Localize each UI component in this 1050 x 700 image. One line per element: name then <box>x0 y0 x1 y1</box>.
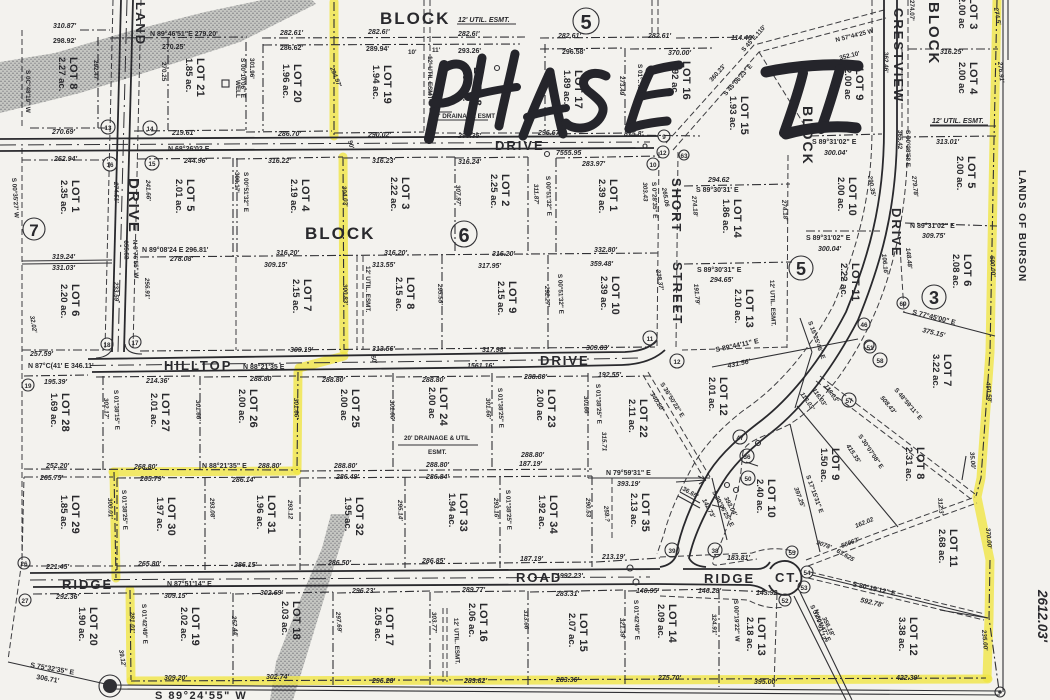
svg-text:47: 47 <box>736 435 744 442</box>
svg-text:289.94': 289.94' <box>366 46 389 53</box>
svg-text:1.69 ac.: 1.69 ac. <box>48 393 59 427</box>
svg-text:1.86 ac.: 1.86 ac. <box>720 199 731 233</box>
svg-text:CT.: CT. <box>775 570 801 585</box>
svg-text:LOT 6: LOT 6 <box>69 284 81 317</box>
svg-text:270.69': 270.69' <box>51 129 75 136</box>
svg-text:LOT 8: LOT 8 <box>67 57 79 90</box>
svg-text:275.70': 275.70' <box>657 675 681 682</box>
svg-text:S 01°38'25" E: S 01°38'25" E <box>496 388 505 428</box>
svg-text:309.75': 309.75' <box>922 233 945 240</box>
svg-text:DRIVE: DRIVE <box>540 353 590 368</box>
svg-text:57: 57 <box>845 398 853 405</box>
svg-text:288.80': 288.80' <box>425 462 449 469</box>
svg-text:LOT 12: LOT 12 <box>717 377 729 416</box>
svg-text:63: 63 <box>680 153 688 160</box>
svg-text:LOT 7: LOT 7 <box>941 354 953 387</box>
svg-text:1.96 ac.: 1.96 ac. <box>254 495 265 529</box>
svg-text:303.77': 303.77' <box>430 612 438 633</box>
svg-text:LOT 10: LOT 10 <box>765 479 777 518</box>
svg-text:2612.03': 2612.03' <box>1035 589 1050 643</box>
svg-text:2.00 ac.: 2.00 ac. <box>835 177 846 211</box>
svg-text:1.97 ac.: 1.97 ac. <box>154 497 165 531</box>
svg-text:N 89°31'02" E: N 89°31'02" E <box>910 222 955 230</box>
svg-text:20' DRAINAGE ESMT: 20' DRAINAGE ESMT <box>432 113 495 120</box>
svg-text:LOT 3: LOT 3 <box>967 0 979 30</box>
svg-text:ESMT.: ESMT. <box>428 449 447 456</box>
svg-text:LOT 29: LOT 29 <box>69 495 81 534</box>
svg-text:LOT 10: LOT 10 <box>609 276 621 315</box>
svg-text:LOT 17: LOT 17 <box>383 607 395 646</box>
svg-text:69: 69 <box>899 301 907 308</box>
svg-text:17: 17 <box>131 340 139 347</box>
svg-text:20' DRAINAGE & UTIL: 20' DRAINAGE & UTIL <box>404 435 470 442</box>
svg-text:5: 5 <box>580 12 591 34</box>
svg-text:LOT 31: LOT 31 <box>265 495 277 534</box>
svg-text:S 00°51'32" E: S 00°51'32" E <box>544 176 553 216</box>
svg-text:LOT 19: LOT 19 <box>381 65 393 104</box>
svg-text:316.20': 316.20' <box>492 251 515 258</box>
svg-text:LOT 24: LOT 24 <box>437 387 449 427</box>
svg-text:LOT 5: LOT 5 <box>184 179 196 212</box>
svg-text:288.80': 288.80' <box>321 377 345 384</box>
svg-text:S 00°10'06" E: S 00°10'06" E <box>239 58 247 98</box>
svg-text:LOT 25: LOT 25 <box>349 389 361 428</box>
svg-text:LOT 3: LOT 3 <box>399 177 411 210</box>
svg-text:LOT 34: LOT 34 <box>547 495 559 535</box>
svg-text:BLOCK: BLOCK <box>800 106 816 166</box>
svg-text:LOT 22: LOT 22 <box>637 399 649 438</box>
svg-text:LANDS OF BURSON: LANDS OF BURSON <box>1016 170 1027 282</box>
svg-text:286.50': 286.50' <box>327 560 351 567</box>
svg-text:300.01': 300.01' <box>106 498 114 519</box>
svg-text:315.71: 315.71 <box>600 432 608 452</box>
svg-text:LOT 11: LOT 11 <box>947 529 959 567</box>
svg-text:2.39 ac.: 2.39 ac. <box>596 179 607 213</box>
svg-text:38: 38 <box>711 548 719 555</box>
svg-text:221.45': 221.45' <box>45 564 69 571</box>
svg-text:1.94 ac.: 1.94 ac. <box>370 65 381 99</box>
svg-text:3: 3 <box>929 288 939 308</box>
svg-text:12' UTIL. ESMT.: 12' UTIL. ESMT. <box>364 266 371 313</box>
svg-text:2.07 ac.: 2.07 ac. <box>566 613 577 647</box>
svg-text:2.00 ac: 2.00 ac <box>426 387 437 419</box>
svg-text:252.20': 252.20' <box>45 463 69 470</box>
svg-text:36: 36 <box>743 454 751 461</box>
svg-text:274.07': 274.07' <box>908 0 915 21</box>
svg-text:LOT 35: LOT 35 <box>639 493 651 532</box>
svg-text:241.66': 241.66' <box>144 179 152 201</box>
svg-text:2.68 ac.: 2.68 ac. <box>936 529 947 563</box>
svg-text:2.10 ac.: 2.10 ac. <box>732 289 743 323</box>
svg-text:311.87': 311.87' <box>532 184 540 205</box>
svg-text:LOT 15: LOT 15 <box>738 96 750 135</box>
svg-text:9: 9 <box>662 134 666 141</box>
svg-text:S 01°38'25" E: S 01°38'25" E <box>594 384 603 424</box>
svg-text:233.59: 233.59 <box>112 281 120 302</box>
svg-text:395.00': 395.00' <box>754 679 777 686</box>
svg-text:14: 14 <box>146 126 154 133</box>
svg-text:331.03': 331.03' <box>52 265 75 272</box>
svg-text:282.61': 282.61' <box>647 33 671 40</box>
svg-text:316.22': 316.22' <box>268 158 291 165</box>
svg-text:46: 46 <box>860 322 868 329</box>
svg-text:270.25: 270.25 <box>160 62 167 82</box>
svg-text:301.66': 301.66' <box>388 400 396 421</box>
svg-text:300.04': 300.04' <box>824 150 847 157</box>
svg-text:313.01': 313.01' <box>936 139 959 146</box>
svg-text:282.61': 282.61' <box>557 33 581 40</box>
svg-text:LOT 7: LOT 7 <box>301 279 313 312</box>
svg-text:LOT 13: LOT 13 <box>743 289 755 328</box>
svg-text:1.96 ac.: 1.96 ac. <box>280 64 291 98</box>
svg-text:307.97': 307.97' <box>454 185 462 206</box>
svg-text:S 89°31'02" E: S 89°31'02" E <box>812 138 857 146</box>
svg-text:13: 13 <box>104 125 112 132</box>
svg-text:292.27': 292.27' <box>543 285 551 307</box>
svg-text:187.19': 187.19' <box>519 461 542 468</box>
svg-text:282.6!': 282.6!' <box>457 31 480 38</box>
svg-text:2.05 ac.: 2.05 ac. <box>372 607 383 641</box>
svg-text:50: 50 <box>744 476 752 483</box>
svg-text:290.02': 290.02' <box>367 132 391 139</box>
svg-text:2.11 ac.: 2.11 ac. <box>626 399 637 433</box>
svg-text:S 89°24'55" W: S 89°24'55" W <box>155 690 247 700</box>
svg-text:54: 54 <box>803 570 811 577</box>
svg-text:2.01 ac.: 2.01 ac. <box>173 179 184 213</box>
svg-text:2.01 ac.: 2.01 ac. <box>148 393 159 427</box>
svg-text:319.24': 319.24' <box>52 254 75 261</box>
svg-text:LOT 11: LOT 11 <box>849 263 861 301</box>
svg-text:295.55': 295.55' <box>436 283 444 305</box>
svg-text:2.00 ac: 2.00 ac <box>956 62 967 94</box>
svg-text:324.91': 324.91' <box>710 614 718 635</box>
svg-text:LOT 6: LOT 6 <box>961 254 973 287</box>
svg-text:2.18 ac.: 2.18 ac. <box>744 617 755 651</box>
svg-text:LOT 10: LOT 10 <box>846 177 858 216</box>
svg-text:LOT 27: LOT 27 <box>159 393 171 432</box>
svg-text:302.74': 302.74' <box>266 674 289 681</box>
svg-text:LOT 9: LOT 9 <box>506 281 518 314</box>
svg-text:2.40 ac.: 2.40 ac. <box>754 479 765 513</box>
svg-text:1.89 ac.: 1.89 ac. <box>561 70 572 104</box>
svg-text:2.00 ac: 2.00 ac <box>338 389 349 421</box>
svg-text:LOT 20: LOT 20 <box>291 64 303 103</box>
svg-text:2.06 ac.: 2.06 ac. <box>466 603 477 637</box>
svg-text:2.15 ac.: 2.15 ac. <box>290 279 301 313</box>
svg-text:257.59': 257.59' <box>29 351 53 358</box>
svg-text:S 89°30'31" E: S 89°30'31" E <box>697 266 742 274</box>
svg-text:309.15': 309.15' <box>164 593 187 600</box>
svg-text:1.95 ac.: 1.95 ac. <box>342 497 353 531</box>
svg-text:LOT 4: LOT 4 <box>967 62 979 95</box>
svg-text:1.85 ac.: 1.85 ac. <box>183 58 194 92</box>
svg-text:365.42: 365.42 <box>896 130 903 150</box>
svg-text:N 87°C(41' E 346.11': N 87°C(41' E 346.11' <box>28 362 94 370</box>
svg-text:293.16': 293.16' <box>492 497 500 519</box>
svg-text:2.39 ac.: 2.39 ac. <box>598 276 609 310</box>
svg-text:302.17': 302.17' <box>102 398 110 419</box>
svg-text:LOT 12: LOT 12 <box>907 617 919 656</box>
svg-text:655.52: 655.52 <box>122 240 130 260</box>
svg-text:300.17': 300.17' <box>233 172 240 193</box>
svg-text:N 88°21'35 E: N 88°21'35 E <box>243 363 285 371</box>
svg-text:183.81': 183.81' <box>727 555 750 562</box>
svg-text:11': 11' <box>432 47 441 54</box>
svg-text:HILLTOP: HILLTOP <box>164 358 232 373</box>
svg-text:53: 53 <box>800 585 808 592</box>
svg-text:DRIVE: DRIVE <box>495 138 545 153</box>
svg-text:313.56': 313.56' <box>372 346 395 353</box>
svg-text:270.25': 270.25' <box>162 44 185 51</box>
svg-text:359.48': 359.48' <box>590 261 613 268</box>
svg-text:6: 6 <box>458 225 469 247</box>
svg-text:219.61': 219.61' <box>171 130 195 137</box>
svg-text:281.01': 281.01' <box>128 611 136 633</box>
svg-text:5: 5 <box>796 259 806 279</box>
svg-text:362.46': 362.46' <box>882 52 889 73</box>
svg-text:288.80': 288.80' <box>333 463 357 470</box>
svg-text:N 0°76'55" W: N 0°76'55" W <box>131 240 140 279</box>
svg-text:2.20 ac.: 2.20 ac. <box>58 284 69 318</box>
svg-text:2.25 ac.: 2.25 ac. <box>488 174 499 208</box>
svg-text:LOT 13: LOT 13 <box>755 617 767 656</box>
svg-text:RIDGE: RIDGE <box>704 571 755 586</box>
svg-text:26: 26 <box>20 561 28 568</box>
svg-text:283.31': 283.31' <box>555 591 579 598</box>
svg-text:S 00°51'32" E: S 00°51'32" E <box>242 172 250 212</box>
svg-text:RIDGE: RIDGE <box>62 577 113 592</box>
svg-text:293.12: 293.12 <box>286 499 294 520</box>
svg-text:N 87°51'14" E: N 87°51'14" E <box>167 580 212 588</box>
svg-text:S 00°19'22" W: S 00°19'22" W <box>732 600 741 642</box>
svg-text:1561.16': 1561.16' <box>467 363 494 370</box>
svg-text:422.39': 422.39' <box>895 675 919 682</box>
svg-text:289.77': 289.77' <box>461 587 485 594</box>
svg-text:294.65': 294.65' <box>709 277 733 284</box>
svg-text:DRIVE: DRIVE <box>889 208 904 258</box>
svg-text:268.80': 268.80' <box>133 464 157 471</box>
svg-text:LOT 28: LOT 28 <box>59 393 71 432</box>
svg-text:N 68°26'02 E: N 68°26'02 E <box>168 145 210 153</box>
svg-text:N 89°08'24 E 296.81': N 89°08'24 E 296.81' <box>142 246 209 254</box>
svg-text:298.92': 298.92' <box>53 38 76 45</box>
svg-text:LOT 1: LOT 1 <box>607 179 619 212</box>
svg-text:S 89°31'02" E: S 89°31'02" E <box>806 234 851 242</box>
svg-text:313.55': 313.55' <box>372 262 395 269</box>
svg-text:213.19': 213.19' <box>601 554 625 561</box>
svg-text:2.00 ac.: 2.00 ac. <box>236 389 247 423</box>
svg-text:7: 7 <box>29 221 38 240</box>
svg-text:309.19': 309.19' <box>290 347 313 354</box>
svg-text:286.15': 286.15' <box>233 562 257 569</box>
svg-text:BLOCK: BLOCK <box>305 224 375 243</box>
svg-text:LOT 33: LOT 33 <box>457 493 469 532</box>
svg-text:2.31 ac.: 2.31 ac. <box>903 447 914 481</box>
svg-text:283.82': 283.82' <box>463 678 487 685</box>
svg-text:332.80': 332.80' <box>594 247 617 254</box>
svg-text:288.80': 288.80' <box>523 374 547 381</box>
svg-text:11: 11 <box>647 336 654 343</box>
svg-text:309.15': 309.15' <box>264 262 287 269</box>
svg-text:LOT 18: LOT 18 <box>290 601 302 640</box>
svg-text:LOT 19: LOT 19 <box>189 607 201 646</box>
svg-text:195.39': 195.39' <box>44 379 67 386</box>
svg-text:10: 10 <box>649 162 657 169</box>
svg-text:S 01°38'15" E: S 01°38'15" E <box>112 390 121 430</box>
svg-text:286.85': 286.85' <box>421 558 445 565</box>
svg-text:288.80': 288.80' <box>520 452 544 459</box>
svg-text:286.62': 286.62' <box>280 45 303 52</box>
svg-text:S 00°28'58 E: S 00°28'58 E <box>904 130 912 167</box>
svg-text:LOT 26: LOT 26 <box>247 389 259 428</box>
svg-text:316.24': 316.24' <box>458 159 481 166</box>
svg-text:7555.95: 7555.95 <box>556 150 581 157</box>
svg-text:18: 18 <box>103 342 111 349</box>
svg-text:302.69': 302.69' <box>260 590 283 597</box>
svg-text:262.94': 262.94' <box>53 156 77 163</box>
svg-text:DRIVE: DRIVE <box>125 178 142 234</box>
svg-text:LOT 20: LOT 20 <box>87 607 99 646</box>
svg-text:500.00': 500.00' <box>988 256 996 278</box>
svg-text:2.13 ac.: 2.13 ac. <box>628 493 639 527</box>
svg-text:265.75': 265.75' <box>39 475 63 482</box>
svg-text:16: 16 <box>106 162 114 169</box>
svg-text:2.00 ac: 2.00 ac <box>534 389 545 421</box>
svg-text:2.01 ac.: 2.01 ac. <box>706 377 717 411</box>
svg-text:296.58': 296.58' <box>562 49 585 56</box>
svg-text:286.70': 286.70' <box>277 131 301 138</box>
svg-text:2.00 ac.: 2.00 ac. <box>954 156 965 190</box>
svg-text:256.91': 256.91' <box>143 277 151 299</box>
svg-text:LAND: LAND <box>133 2 148 46</box>
svg-text:12' UTIL. ESMT.: 12' UTIL. ESMT. <box>932 118 984 125</box>
svg-text:300.83': 300.83' <box>341 284 349 305</box>
svg-text:LOT 9: LOT 9 <box>853 68 865 101</box>
svg-text:290.53: 290.53 <box>584 497 592 518</box>
svg-text:LOT 14: LOT 14 <box>666 604 678 644</box>
svg-text:S 0°28'35" E: S 0°28'35" E <box>650 182 659 219</box>
svg-text:LOT 30: LOT 30 <box>165 497 177 536</box>
svg-text:273.49: 273.49 <box>618 76 625 96</box>
svg-text:296.28': 296.28' <box>371 678 395 685</box>
svg-text:2.09 ac.: 2.09 ac. <box>655 604 666 638</box>
svg-text:310.87': 310.87' <box>53 23 76 30</box>
svg-text:27: 27 <box>21 598 29 605</box>
svg-text:1.50 ac.: 1.50 ac. <box>818 448 829 482</box>
svg-text:2.02 ac.: 2.02 ac. <box>178 607 189 641</box>
svg-text:30166: 30166 <box>582 396 590 414</box>
svg-text:LOT 8: LOT 8 <box>404 277 416 310</box>
svg-text:313.66: 313.66 <box>522 610 530 630</box>
svg-text:288.80': 288.80' <box>421 377 445 384</box>
svg-text:214.36': 214.36' <box>145 378 169 385</box>
svg-text:1.90 ac.: 1.90 ac. <box>76 607 87 641</box>
svg-text:244.96': 244.96' <box>183 158 207 165</box>
svg-text:LOT 14: LOT 14 <box>731 199 743 239</box>
svg-text:309.83': 309.83' <box>586 345 609 352</box>
svg-text:292.36': 292.36' <box>55 594 79 601</box>
svg-text:283.36': 283.36' <box>555 677 579 684</box>
svg-text:2.08 ac.: 2.08 ac. <box>950 254 961 288</box>
svg-text:274.51': 274.51' <box>112 181 120 203</box>
svg-text:293.08': 293.08' <box>208 497 216 519</box>
svg-text:S 89°30'31' E: S 89°30'31' E <box>696 186 739 194</box>
svg-text:2.15 ac.: 2.15 ac. <box>393 277 404 311</box>
svg-text:286.14': 286.14' <box>231 477 255 484</box>
svg-text:301.66': 301.66' <box>292 398 300 419</box>
svg-text:S 01°42'49" E: S 01°42'49" E <box>632 600 641 640</box>
svg-text:1.93 ac.: 1.93 ac. <box>727 96 738 130</box>
svg-text:52: 52 <box>781 598 789 605</box>
svg-text:140.95': 140.95' <box>636 588 659 595</box>
svg-text:146.28': 146.28' <box>698 588 721 595</box>
svg-text:370.00': 370.00' <box>668 50 691 57</box>
svg-text:S 00°51'32" E: S 00°51'32" E <box>556 274 565 314</box>
svg-text:192.55': 192.55' <box>598 372 621 379</box>
svg-text:LOT 23: LOT 23 <box>545 389 557 428</box>
svg-text:301.96': 301.96' <box>248 58 255 79</box>
svg-text:BLOCK: BLOCK <box>380 9 450 28</box>
svg-text:LOT 15: LOT 15 <box>577 613 589 652</box>
svg-text:LOT 21: LOT 21 <box>194 58 206 97</box>
svg-text:55: 55 <box>788 550 796 557</box>
svg-text:316.20': 316.20' <box>276 250 299 257</box>
svg-text:LOT 32: LOT 32 <box>353 497 365 536</box>
svg-text:2.27 ac.: 2.27 ac. <box>56 57 67 91</box>
svg-text:265.80': 265.80' <box>137 561 161 568</box>
svg-text:S 01°42'49" E: S 01°42'49" E <box>140 604 149 644</box>
svg-text:282.6!': 282.6!' <box>367 29 390 36</box>
svg-text:293.26': 293.26' <box>458 48 481 55</box>
svg-text:317.95': 317.95' <box>478 263 501 270</box>
svg-text:SHORT: SHORT <box>669 178 684 234</box>
svg-text:295.14': 295.14' <box>396 499 404 521</box>
svg-text:19: 19 <box>24 383 32 390</box>
svg-text:LOT 9: LOT 9 <box>829 448 841 481</box>
svg-text:15: 15 <box>148 161 156 168</box>
svg-text:1.94 ac.: 1.94 ac. <box>446 493 457 527</box>
svg-text:2.22 ac.: 2.22 ac. <box>388 177 399 211</box>
svg-text:294.62: 294.62 <box>707 177 730 184</box>
svg-text:309.20': 309.20' <box>164 675 187 682</box>
svg-text:LOT 8: LOT 8 <box>914 447 926 480</box>
svg-text:278.08': 278.08' <box>169 256 193 263</box>
svg-text:3.38 ac.: 3.38 ac. <box>896 617 907 651</box>
svg-text:301.66': 301.66' <box>484 398 492 419</box>
svg-text:LOT 1: LOT 1 <box>69 180 81 213</box>
svg-text:2.19 ac.: 2.19 ac. <box>288 179 299 213</box>
svg-text:LOT 2: LOT 2 <box>499 174 511 207</box>
svg-text:2.03 ac.: 2.03 ac. <box>279 601 290 635</box>
svg-text:STREET: STREET <box>670 262 685 325</box>
svg-text:2.00 ac: 2.00 ac <box>956 0 967 29</box>
svg-text:288.80': 288.80' <box>257 463 281 470</box>
svg-text:143.92: 143.92 <box>756 590 778 597</box>
svg-text:292.47': 292.47' <box>92 60 99 81</box>
svg-text:316.23': 316.23' <box>372 158 395 165</box>
svg-text:12: 12 <box>673 359 681 366</box>
svg-text:2.35 ac.: 2.35 ac. <box>58 180 69 214</box>
svg-text:288.80: 288.80 <box>249 376 272 383</box>
svg-text:317.98': 317.98' <box>482 347 505 354</box>
svg-text:12' UTIL ESMT: 12' UTIL ESMT <box>426 56 433 100</box>
svg-text:2.22 ac.: 2.22 ac. <box>838 263 849 297</box>
svg-text:301.66': 301.66' <box>194 400 202 421</box>
svg-text:265.79': 265.79' <box>139 476 163 483</box>
svg-text:3.22 ac.: 3.22 ac. <box>930 354 941 388</box>
svg-text:296.23': 296.23' <box>351 588 375 595</box>
svg-text:10': 10' <box>408 49 417 56</box>
